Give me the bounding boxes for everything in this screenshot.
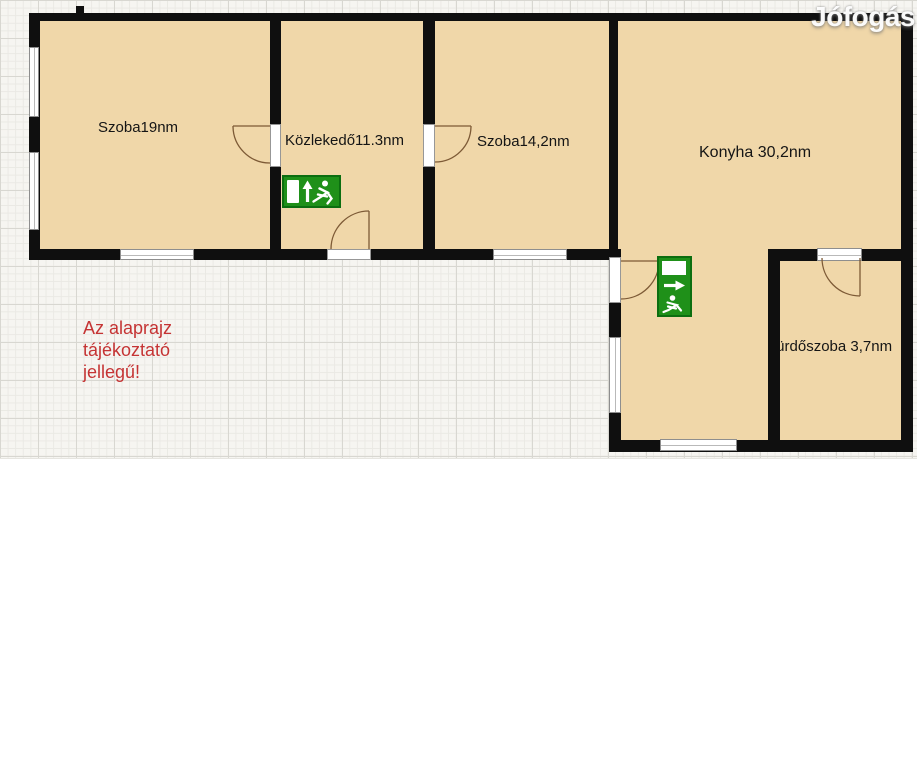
exit-sign-horizontal — [282, 175, 341, 208]
exit-sign-vertical — [657, 256, 692, 317]
window-szoba19-bottom — [120, 249, 194, 260]
exit-door-arrow-runner-icon — [659, 258, 690, 315]
door-opening-kitchen-left — [609, 257, 621, 303]
window-szoba19-left-2 — [29, 152, 39, 230]
door-opening-szoba14 — [423, 124, 435, 167]
jofogas-watermark: Jófogás — [811, 1, 915, 33]
disclaimer-line-1: Az alaprajz — [83, 317, 172, 339]
wall-bathroom-left — [768, 249, 780, 452]
wall-szoba14-konyha — [609, 21, 618, 249]
room-label-kozlekedo: Közlekedő11.3nm — [285, 132, 404, 149]
exit-door-arrow-runner-icon — [284, 177, 339, 206]
door-opening-kozlekedo-bottom — [327, 249, 371, 260]
room-label-furdoszoba: fürdőszoba 3,7nm — [772, 338, 892, 355]
room-label-konyha: Konyha 30,2nm — [699, 144, 811, 162]
room-label-szoba14: Szoba14,2nm — [477, 133, 570, 150]
floorplan-image: Szoba19nm Közlekedő11.3nm Szoba14,2nm Ko… — [0, 0, 917, 768]
wall-top — [29, 13, 913, 21]
window-kitchen-left — [609, 337, 621, 413]
disclaimer-line-2: tájékoztató — [83, 339, 172, 361]
window-szoba14-bottom — [493, 249, 567, 260]
room-fill-kitchen-block — [618, 21, 901, 440]
door-opening-szoba19 — [270, 124, 281, 167]
room-label-szoba19: Szoba19nm — [98, 119, 178, 136]
wall-top-tick — [76, 6, 84, 14]
disclaimer-note: Az alaprajz tájékoztató jellegű! — [83, 317, 172, 383]
window-kitchen-bottom — [660, 439, 737, 451]
wall-right — [901, 13, 913, 452]
wall-bottom — [609, 440, 913, 452]
door-threshold-bathroom — [817, 248, 862, 261]
window-szoba19-left-1 — [29, 47, 39, 117]
disclaimer-line-3: jellegű! — [83, 361, 172, 383]
